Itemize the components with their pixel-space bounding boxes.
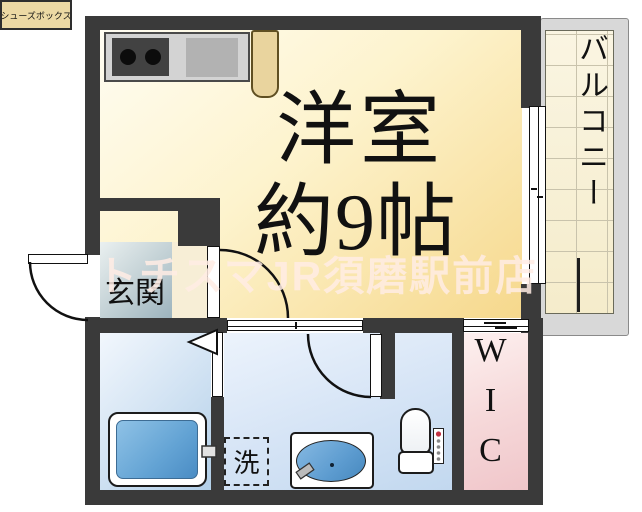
bathroom-sliding-door [212,332,223,397]
laundry-pan: 洗 [224,437,269,486]
wall-pillar [178,198,220,246]
stove-burner-icon [120,49,136,65]
wic-label: WIC [478,332,514,482]
wall-bath-wash [211,397,224,490]
kitchen-sink [186,38,238,77]
wall-mid-band-b [363,318,462,333]
balcony-partition [577,258,580,312]
wall-right-upper [521,16,541,108]
window-tick [537,196,543,198]
toilet-bowl [400,408,431,454]
wic-door-tick [495,327,517,329]
toilet-tank [398,451,434,474]
washroom-door-leaf [370,334,382,397]
wall-toilet-wic [452,318,464,490]
washroom-threshold-tick [295,322,297,329]
stove-burner-icon [145,49,161,65]
window-tick [531,188,537,190]
sink-drain-icon [330,463,334,467]
front-door-arc [30,262,88,320]
bathtub-water [116,420,198,479]
washlet-panel [433,428,444,464]
vanity-sink [296,440,366,482]
refrigerator-slot [251,30,279,98]
wall-mid-band-a [85,318,227,333]
laundry-label: 洗 [233,443,259,480]
wic-door-tick [484,322,506,324]
wall-wash-toilet [380,333,395,399]
wall-right-lower [528,318,543,505]
realtor-watermark: トチスマJR須磨駅前店 [96,242,538,302]
wall-bottom [85,490,543,505]
wall-top [85,16,541,30]
front-door-leaf [28,254,88,264]
main-room-label: 洋室 [276,88,444,174]
shoe-box: シューズボックス [0,0,72,30]
balcony-label: バルコニー [568,33,612,213]
floorplan-canvas: シューズボックス 洗 [0,0,642,512]
shoe-box-label: シューズボックス [0,9,71,22]
wic-sliding-door [463,319,529,332]
wall-left-upper [85,16,100,255]
wall-left-lower [85,317,100,505]
